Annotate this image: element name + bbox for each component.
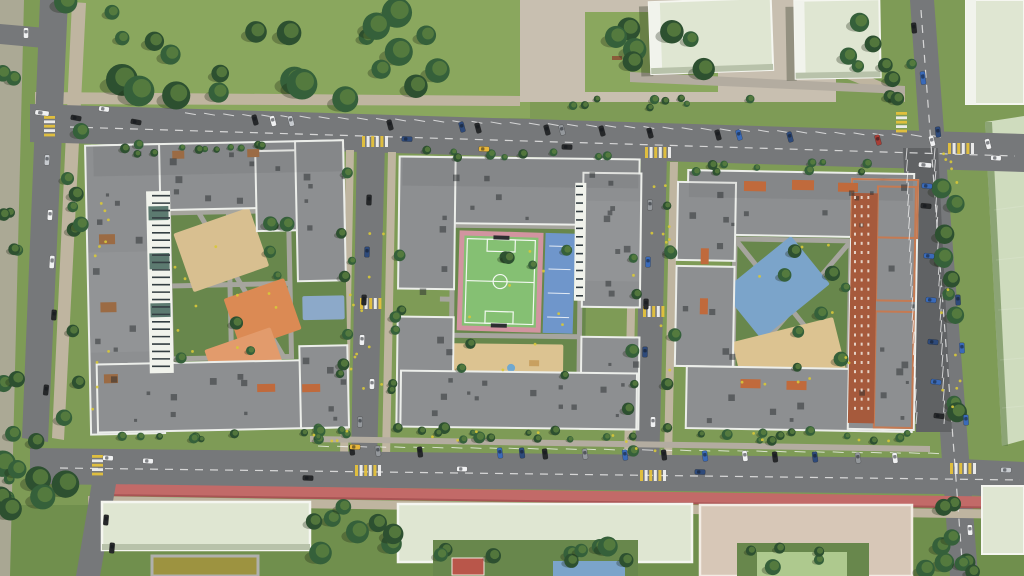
brick-window [867,315,869,318]
flower-bush [758,275,761,278]
sand-equipment [529,360,539,366]
roof-unit [327,367,334,374]
flower-bush [941,389,944,392]
roof-unit [237,198,243,204]
tree-highlight [665,202,670,207]
tree-highlight [200,437,204,441]
tree-highlight [870,37,880,47]
flower-bush [942,152,945,155]
tree-highlight [214,85,226,97]
crosswalk-bar [663,147,666,158]
car-windshield [960,345,964,349]
tree-highlight [192,435,198,441]
tree-highlight [119,32,128,41]
roof-unit [723,348,730,355]
north-building-3 [966,0,1024,104]
car [361,295,366,306]
flower-bush [468,315,471,318]
car [542,448,548,459]
roof-unit [633,361,639,367]
car-windshield [856,455,860,459]
tree-highlight [139,433,144,438]
flower-bush [345,430,348,433]
flower-bush [761,438,764,441]
tree-highlight [340,427,345,432]
crosswalk-bar [378,465,381,476]
tree-highlight [795,364,800,369]
tree-highlight [65,173,73,181]
car-windshield [936,129,940,133]
flower-bush [382,233,385,236]
tree-highlight [338,371,343,376]
tree-highlight [436,430,441,435]
tree-highlight [10,428,20,438]
crosswalk-bar [374,298,377,309]
flower-bush [104,240,107,243]
flower-bush [955,387,958,390]
tree-highlight [73,188,82,197]
roof-unit [624,246,631,253]
car [930,379,941,385]
brick-window [861,196,863,199]
roof-unit [470,206,474,210]
brick-window [854,288,856,291]
flower-bush [456,439,459,442]
tree-highlight [948,531,958,541]
roof-unit [901,416,905,420]
car [661,449,667,460]
car-windshield [44,387,48,391]
roof-unit [341,379,346,384]
flower-bush [534,343,537,346]
brick-window [861,389,863,392]
brick-window [867,224,869,227]
car [920,71,926,84]
tree-highlight [665,379,672,386]
car [103,455,114,461]
tree-highlight [939,250,951,262]
tree-highlight [197,146,202,151]
tree-highlight [249,347,254,352]
car-windshield [643,349,646,352]
tree-highlight [503,155,507,159]
tree-highlight [391,1,409,19]
roof-unit [849,190,854,195]
brick-window [867,233,869,236]
building-d [982,486,1024,554]
flower-bush [508,284,511,287]
tree-highlight [653,96,659,102]
car-windshield [923,204,927,208]
roof-unit [440,226,446,232]
car-windshield [358,419,362,422]
roof-unit [93,268,100,275]
flower-bush [660,324,663,327]
tree-highlight [605,434,610,439]
tree-highlight [521,150,527,156]
tree-highlight [770,437,776,443]
parking-stall-line [318,446,329,447]
car [991,155,1002,161]
roof-unit [111,376,117,382]
car-windshield [45,157,49,161]
roof-unit [275,166,280,171]
tree-highlight [471,430,475,434]
flower-bush [100,202,103,205]
flower-bush [236,294,239,297]
tree-highlight [170,84,187,101]
tree-highlight [855,61,862,68]
crosswalk-bar [44,120,55,123]
roof-unit [307,225,312,230]
crosswalk-bar [364,465,367,476]
tree-highlight [937,181,949,193]
roof-unit [432,410,438,416]
tree-highlight [865,160,871,166]
car-windshield [352,445,355,449]
red-roof-structure [452,558,484,575]
flower-bush [635,447,638,450]
flower-bush [654,449,657,452]
brick-window [867,352,869,355]
car-windshield [662,452,666,456]
crosswalk-bar [385,136,388,147]
flower-bush [174,266,177,269]
roof-unit [171,394,177,400]
brick-window [861,379,863,382]
flower-bush [104,209,107,212]
brick-window [861,352,863,355]
car [479,146,490,151]
flower-bush [955,181,958,184]
car-windshield [520,450,524,454]
crosswalk-bar [661,306,664,317]
tree-highlight [477,433,484,440]
tree-highlight [952,308,962,318]
tree-highlight [489,434,494,439]
tree-highlight [452,149,456,153]
brick-window [867,398,869,401]
tree-highlight [777,544,784,551]
flower-bush [954,354,957,357]
flower-bush [664,184,667,187]
brick-window [861,370,863,373]
scene-canvas [0,0,1024,576]
roof-unit [134,419,137,422]
car [49,255,55,268]
crosswalk-bar [953,143,956,154]
flower-bush [360,309,363,312]
tree-highlight [527,430,531,434]
crosswalk-bar [649,470,652,481]
tree-highlight [624,20,638,34]
tree-highlight [685,101,689,105]
tree-highlight [13,373,23,383]
roof-unit [333,417,337,421]
crosswalk-bar [92,473,103,476]
car [366,195,371,206]
brick-window [854,306,856,309]
tree-highlight [941,227,953,239]
car-windshield [38,111,43,115]
car-windshield [481,147,484,151]
roof-unit [571,404,576,409]
car [1001,467,1012,472]
brick-window [861,288,863,291]
car [855,452,861,463]
brick-window [867,334,869,337]
roof-unit [147,391,151,395]
roof-unit [689,212,696,219]
tree-highlight [665,424,671,430]
parking-stall-line [756,451,767,452]
tree-highlight [317,427,324,434]
flower-bush [650,232,653,235]
facade-shade [102,544,310,550]
brick-window [861,279,863,282]
roof-unit [475,396,479,400]
tree-highlight [808,427,814,433]
tree-highlight [374,516,385,527]
crosswalk-bar [645,147,648,158]
tree-highlight [970,566,979,575]
tree-highlight [829,267,838,276]
flower-bush [668,225,671,228]
brick-window [861,407,863,410]
tree-highlight [807,167,813,173]
brick-window [854,279,856,282]
flower-bush [612,434,615,437]
parking-stall-line [928,453,939,454]
car-windshield [370,381,373,384]
tree-highlight [350,258,355,263]
tree-highlight [393,312,400,319]
tree-highlight [506,253,513,260]
crosswalk-bar [650,147,653,158]
tree-highlight [120,433,126,439]
roof-unit [604,216,610,222]
car-windshield [930,340,934,344]
tree-highlight [267,218,276,227]
tree-highlight [136,151,141,156]
tree-highlight [229,145,233,149]
crosswalk-bar [955,463,958,474]
car [959,343,965,354]
car-windshield [365,249,369,252]
crosswalk-bar [44,116,55,119]
flower-bush [557,312,560,315]
tree-highlight [629,345,637,353]
tree-highlight [13,462,24,473]
car [926,297,937,303]
tree-highlight [940,555,952,567]
brick-window [867,288,869,291]
crosswalk-bar [948,143,951,154]
car-windshield [651,419,654,422]
car-windshield [956,297,960,301]
car [702,450,708,461]
roof-unit [95,339,100,344]
car [918,162,931,168]
roof-unit [205,195,211,201]
crosswalk-bar [640,470,643,481]
tree-highlight [672,330,680,338]
brick-window [867,279,869,282]
car-windshield [697,470,700,474]
roof-unit [717,192,723,198]
parking-stall-line [833,452,844,453]
tree-highlight [700,431,704,435]
roof-unit [559,385,563,389]
tree-highlight [33,435,43,445]
flower-bush [475,430,478,433]
car [350,444,361,449]
parking-stall-line [909,453,920,454]
crosswalk-bar [896,130,907,133]
parking-stall-line [394,447,405,448]
roof-unit [880,347,884,351]
car [922,183,933,189]
roof-unit [881,392,887,398]
tree-highlight [687,33,696,42]
car-windshield [921,163,925,167]
flower-bush [330,439,333,442]
facade-teal-panel [150,303,170,317]
tree-highlight [61,411,71,421]
block3-brick-facade [848,193,878,423]
tree-highlight [232,430,238,436]
tree-highlight [611,28,624,41]
brick-window [854,205,856,208]
crosswalk-bar [369,298,372,309]
flower-bush [858,439,861,442]
roof-unit [244,412,247,415]
flower-bush [959,380,962,383]
car [24,28,29,39]
flower-bush [801,246,804,249]
tree-highlight [889,73,899,83]
tree-highlight [345,330,352,337]
car-windshield [924,184,928,188]
brick-window [854,269,856,272]
flower-bush [107,350,110,353]
brick-window [854,214,856,217]
roof-unit [870,191,874,195]
car [47,210,53,221]
roof-unit [136,237,143,244]
tree-highlight [345,169,352,176]
flower-bush [177,329,180,332]
car [935,127,941,138]
roof-unit [305,199,309,203]
tree-highlight [456,154,461,159]
roof-unit [896,368,903,375]
tree-highlight [179,354,186,361]
parking-stall-line [528,448,539,449]
car-windshield [893,455,897,459]
tree-highlight [251,23,264,36]
tree-highlight [371,16,387,32]
tree-highlight [578,545,586,553]
flower-bush [542,270,545,273]
brick-window [867,251,869,254]
flower-bush [107,219,110,222]
roof-unit [683,306,688,311]
parking-stall-line [471,448,482,449]
flower-bush [537,431,540,434]
crosswalk-bar [44,134,55,137]
car-windshield [623,452,627,456]
roof-unit [770,409,776,415]
flower-bush [944,158,947,161]
car-windshield [145,459,149,463]
crosswalk-bar [369,465,372,476]
flower-bush [808,377,811,380]
flower-bush [336,439,339,442]
flower-bush [96,361,99,364]
roof-unit [229,152,234,157]
roof-unit [482,381,487,386]
roof-unit [442,266,448,272]
roof-unit [606,281,612,287]
roof-unit [600,387,606,393]
tree-highlight [821,160,825,164]
tree-highlight [234,318,242,326]
tree-highlight [397,251,404,258]
car [103,515,109,526]
brick-window [867,324,869,327]
flower-bush [368,232,371,235]
tree-highlight [648,105,653,110]
brick-window [867,205,869,208]
brick-window [867,269,869,272]
tree-highlight [339,229,345,235]
car [892,452,898,463]
flower-bush [350,368,353,371]
tree-highlight [790,429,795,434]
crosswalk-bar [362,136,365,147]
tree-highlight [748,96,753,101]
brick-window [854,343,856,346]
tree-highlight [468,340,474,346]
tree-highlight [284,218,293,227]
car [143,458,154,464]
flower-bush [191,350,194,353]
brick-window [861,233,863,236]
roof-unit [822,210,827,215]
flower-bush [96,386,99,389]
brick-window [861,343,863,346]
flower-bush [662,233,665,236]
car [562,144,573,149]
flower-bush [236,346,239,349]
roof-unit [608,211,613,216]
roof-unit [530,390,536,396]
tree-highlight [531,261,536,266]
parking-stall-line [451,448,462,449]
brick-window [861,398,863,401]
parking-stall-line [642,450,653,451]
block2-facade [574,183,586,301]
flower-bush [349,293,352,296]
brick-window [861,269,863,272]
tree-highlight [353,523,367,537]
car-windshield [993,156,997,160]
tree-highlight [217,67,228,78]
car [375,445,381,456]
tree-highlight [391,380,397,386]
flower-bush [951,405,954,408]
